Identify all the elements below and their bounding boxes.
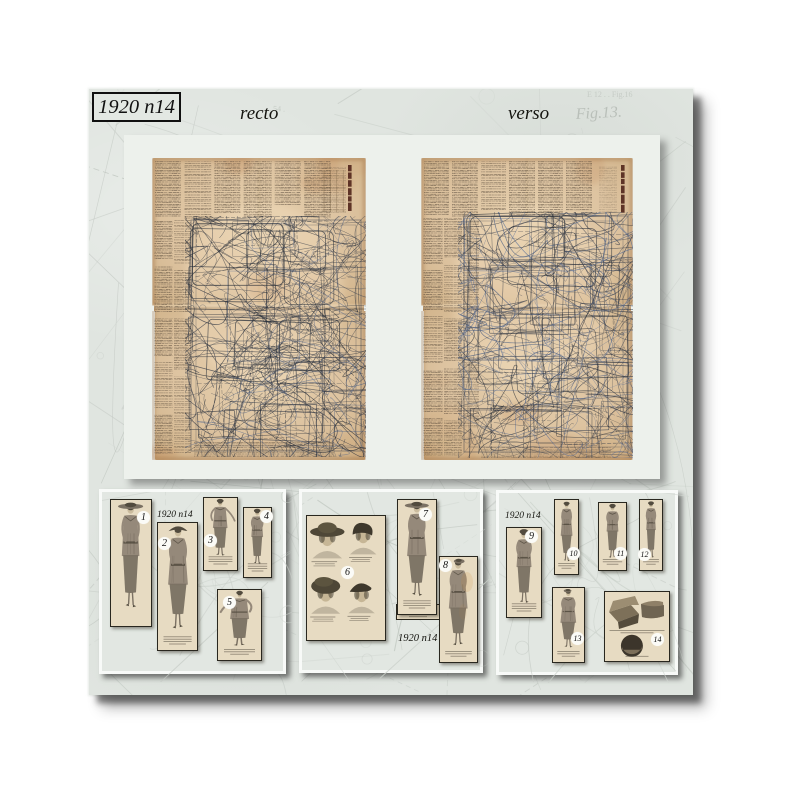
svg-text:1920 n14: 1920 n14	[505, 511, 541, 521]
svg-text:E 12 . . Fig.16: E 12 . . Fig.16	[587, 90, 633, 99]
svg-text:1920 n14: 1920 n14	[157, 510, 193, 520]
svg-text:1920 n14: 1920 n14	[398, 633, 438, 644]
svg-text:Fig.13.: Fig.13.	[574, 104, 622, 123]
